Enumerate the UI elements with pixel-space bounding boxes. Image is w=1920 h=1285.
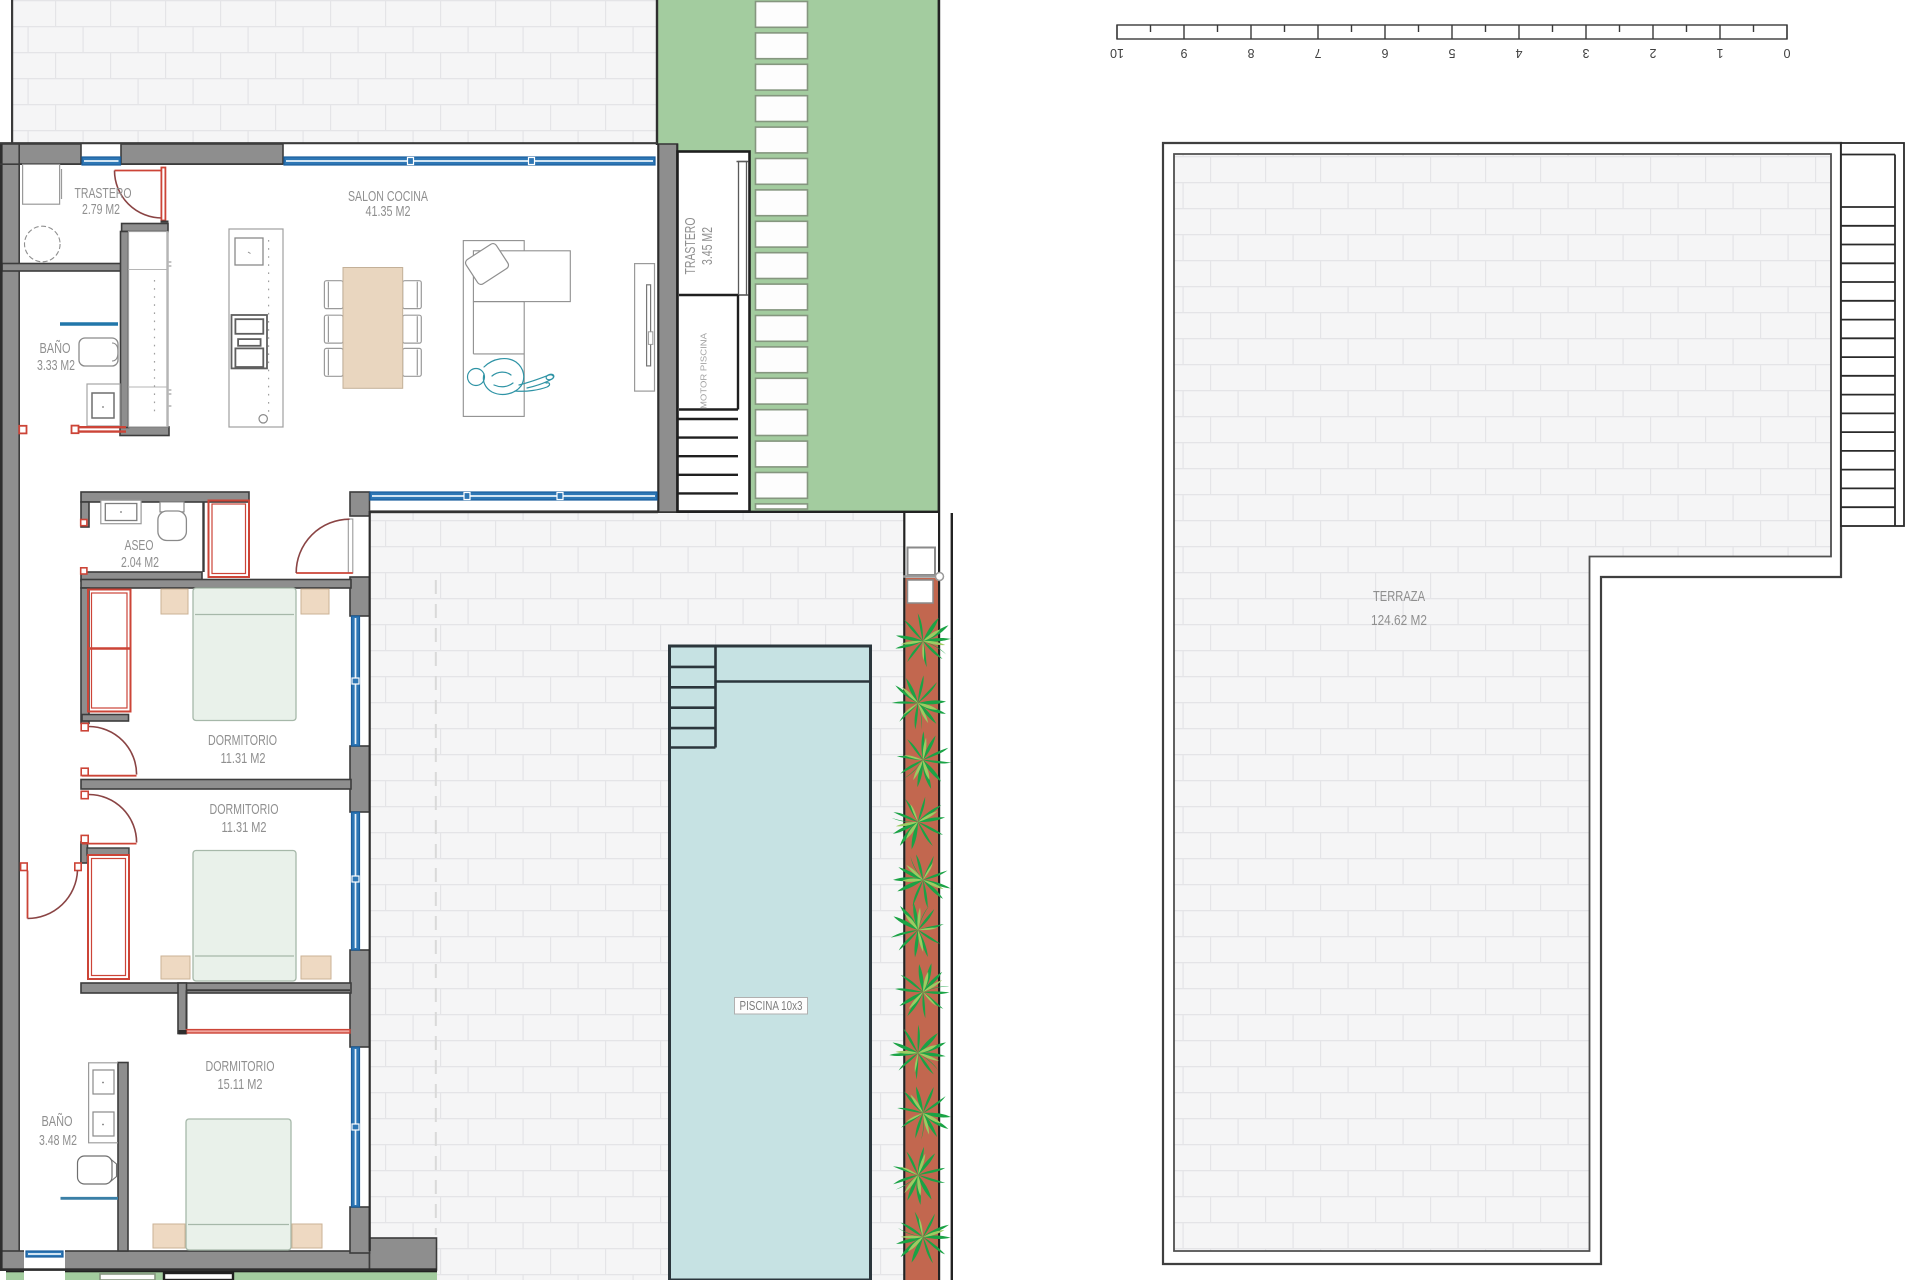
svg-text:11.31 M2: 11.31 M2 [222,820,267,836]
svg-text:3.33 M2: 3.33 M2 [37,358,75,374]
svg-text:TRASTERO: TRASTERO [683,218,699,275]
svg-text:5: 5 [1448,46,1455,60]
svg-text:1: 1 [1716,46,1723,60]
svg-text:SALON COCINA: SALON COCINA [348,189,428,205]
svg-text:DORMITORIO: DORMITORIO [208,733,277,749]
svg-text:9: 9 [1180,46,1187,60]
svg-text:2.04 M2: 2.04 M2 [121,555,159,571]
svg-text:4: 4 [1515,46,1522,60]
svg-text:DORMITORIO: DORMITORIO [210,802,279,818]
svg-text:BAÑO: BAÑO [42,1113,73,1130]
svg-text:ASEO: ASEO [125,538,154,554]
svg-text:8: 8 [1247,46,1254,60]
svg-text:DORMITORIO: DORMITORIO [206,1059,275,1075]
svg-text:11.31 M2: 11.31 M2 [221,751,266,767]
svg-text:2.79 M2: 2.79 M2 [82,202,120,218]
svg-text:TERRAZA: TERRAZA [1373,589,1425,605]
svg-text:15.11 M2: 15.11 M2 [218,1077,263,1093]
svg-text:124.62 M2: 124.62 M2 [1371,613,1427,629]
svg-text:TRASTERO: TRASTERO [75,186,132,202]
svg-text:41.35 M2: 41.35 M2 [366,204,411,220]
svg-text:3.48 M2: 3.48 M2 [39,1133,77,1149]
svg-text:PISCINA 10x3: PISCINA 10x3 [740,999,803,1013]
svg-text:MOTOR PISCINA: MOTOR PISCINA [699,333,709,409]
svg-text:3: 3 [1582,46,1589,60]
svg-text:2: 2 [1649,46,1656,60]
svg-text:3.45 M2: 3.45 M2 [700,227,716,265]
svg-text:BAÑO: BAÑO [40,340,71,357]
svg-text:10: 10 [1110,46,1124,60]
svg-text:0: 0 [1783,46,1790,60]
svg-text:7: 7 [1314,46,1321,60]
svg-text:6: 6 [1381,46,1388,60]
